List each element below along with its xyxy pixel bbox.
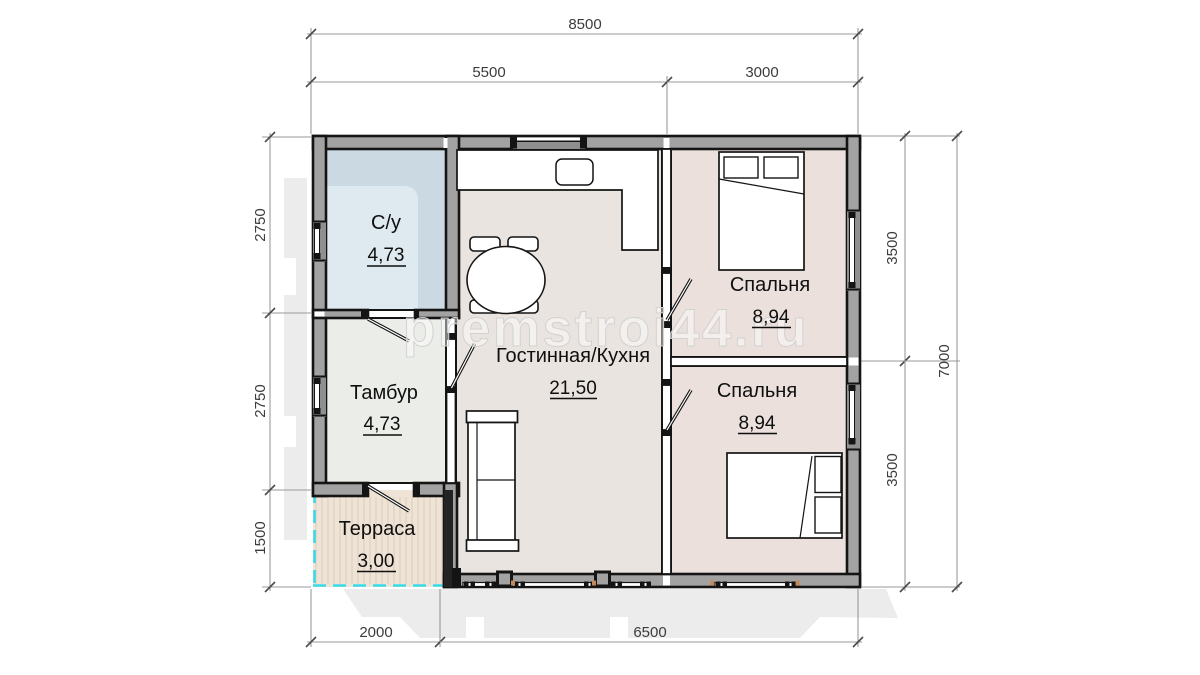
svg-text:3000: 3000 <box>745 64 778 81</box>
svg-text:8,94: 8,94 <box>739 413 776 434</box>
svg-text:8,94: 8,94 <box>753 307 790 328</box>
svg-text:Тамбур: Тамбур <box>350 382 418 404</box>
svg-text:8500: 8500 <box>568 16 601 33</box>
svg-text:7000: 7000 <box>936 344 953 377</box>
svg-text:Терраса: Терраса <box>339 518 417 540</box>
svg-text:21,50: 21,50 <box>549 378 597 399</box>
svg-text:С/у: С/у <box>371 212 401 234</box>
svg-text:1500: 1500 <box>252 521 269 554</box>
svg-text:6500: 6500 <box>633 624 666 641</box>
svg-text:Спальня: Спальня <box>730 274 810 296</box>
svg-text:Спальня: Спальня <box>717 380 797 402</box>
svg-text:3500: 3500 <box>884 453 901 486</box>
svg-text:2750: 2750 <box>252 208 269 241</box>
svg-text:2000: 2000 <box>359 624 392 641</box>
svg-text:Гостинная/Кухня: Гостинная/Кухня <box>496 345 650 367</box>
svg-text:3500: 3500 <box>884 231 901 264</box>
svg-text:4,73: 4,73 <box>364 414 401 435</box>
svg-text:3,00: 3,00 <box>358 551 395 572</box>
svg-text:4,73: 4,73 <box>368 245 405 266</box>
svg-text:2750: 2750 <box>252 384 269 417</box>
svg-text:5500: 5500 <box>472 64 505 81</box>
